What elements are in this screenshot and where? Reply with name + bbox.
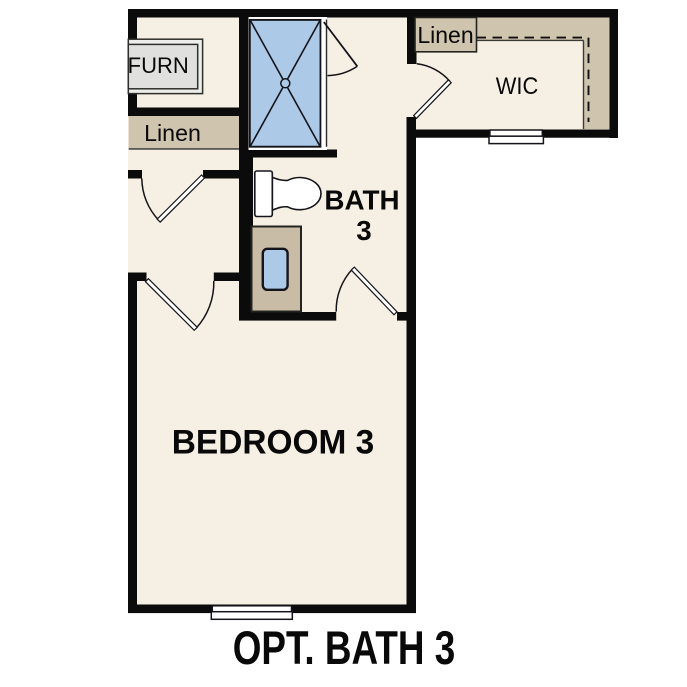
svg-text:WIC: WIC [496, 73, 539, 100]
svg-text:OPT. BATH 3: OPT. BATH 3 [233, 621, 456, 674]
svg-text:3: 3 [356, 215, 371, 246]
svg-text:Linen: Linen [144, 120, 201, 146]
svg-text:FURN: FURN [128, 53, 189, 78]
svg-text:BEDROOM 3: BEDROOM 3 [172, 423, 375, 461]
svg-text:BATH: BATH [324, 184, 399, 215]
svg-text:Linen: Linen [417, 22, 473, 48]
